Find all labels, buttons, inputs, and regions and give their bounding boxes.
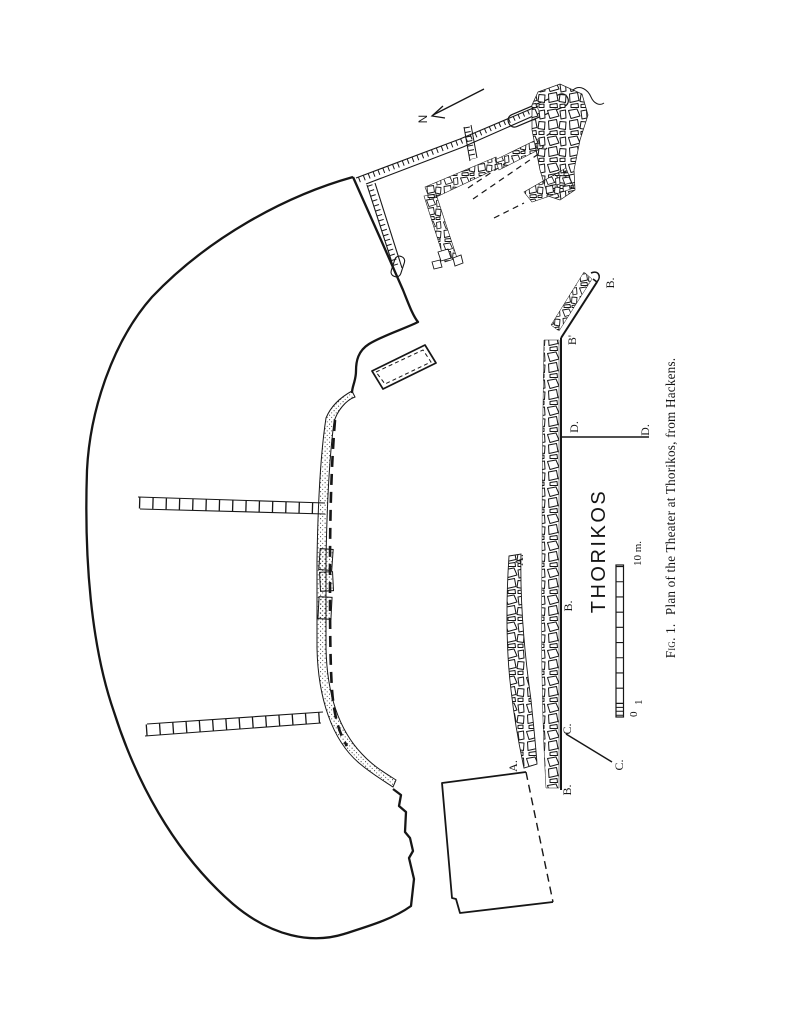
altar <box>372 345 436 389</box>
scatter-stones <box>432 249 463 269</box>
label-b-prime: B' <box>565 335 579 345</box>
wall-a-rubble <box>507 554 537 768</box>
label-b-bottom: B. <box>560 784 574 795</box>
scanned-paper-page: N <box>0 0 792 1024</box>
label-d-right: D. <box>638 424 652 436</box>
label-d-left: D. <box>567 421 581 433</box>
label-c-right: C. <box>612 759 626 770</box>
theater-plan-figure: N <box>0 0 792 1024</box>
label-b-mid: B. <box>561 600 575 611</box>
c-line <box>566 734 612 762</box>
stairway-lower <box>145 712 323 736</box>
stairway-upper <box>138 497 325 514</box>
wall-b-rubble <box>542 340 559 788</box>
caption-text: Plan of the Theater at Thorikos, from Ha… <box>663 358 678 615</box>
terrace-rubble-band <box>425 157 500 200</box>
label-b-top: B. <box>603 277 617 288</box>
terrace-complex <box>424 84 604 269</box>
caption-fig-number: Fig. 1. <box>663 624 678 659</box>
stage-building <box>442 772 553 913</box>
site-label: THORIKOS <box>588 489 610 613</box>
figure-caption: Fig. 1. Plan of the Theater at Thorikos,… <box>663 358 678 659</box>
north-label: N <box>416 115 430 124</box>
wall-b-hook <box>591 272 599 282</box>
scale-zero-label: 0 <box>628 711 640 717</box>
scale-one-label: 1 <box>633 700 645 706</box>
scale-bar <box>616 565 624 717</box>
label-a-top: A. <box>512 554 526 566</box>
proedria-blocks <box>318 549 334 620</box>
cavea-outline <box>86 177 418 938</box>
orchestra-edge <box>317 391 396 787</box>
wall-end-foot <box>390 255 406 278</box>
scale-ten-label: 10 m. <box>632 541 644 566</box>
label-a-bottom: A. <box>506 760 520 772</box>
label-c-left: C. <box>560 723 574 734</box>
north-arrow <box>432 89 484 118</box>
